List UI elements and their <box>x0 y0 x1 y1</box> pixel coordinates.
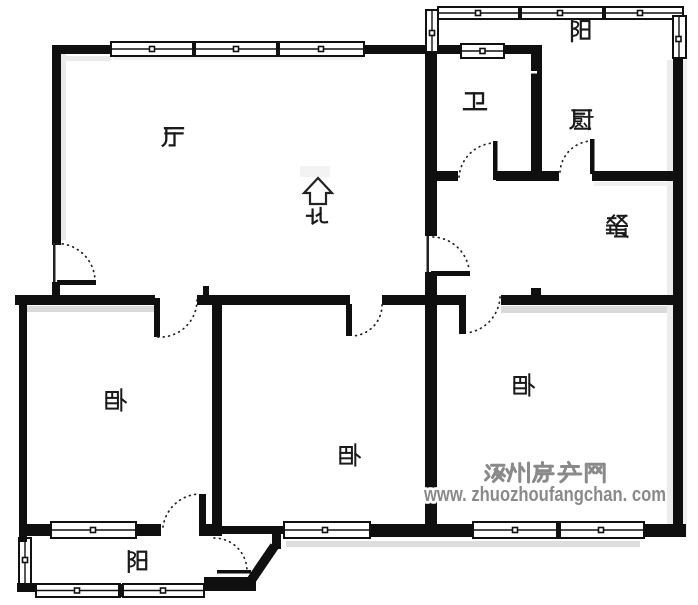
svg-text:www. zhuozhoufangchan. com: www. zhuozhoufangchan. com <box>423 483 666 506</box>
